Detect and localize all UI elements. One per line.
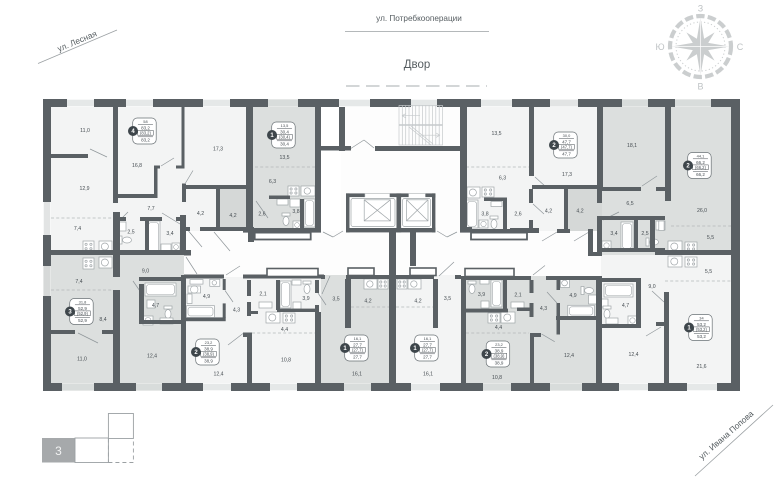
svg-text:3,5: 3,5 bbox=[444, 296, 451, 302]
svg-text:38,9: 38,9 bbox=[204, 358, 213, 363]
svg-text:6,5: 6,5 bbox=[626, 201, 633, 207]
svg-text:Двор: Двор bbox=[404, 59, 431, 71]
svg-text:4,4: 4,4 bbox=[281, 327, 288, 333]
svg-text:4,9: 4,9 bbox=[569, 293, 576, 299]
svg-text:(27,7): (27,7) bbox=[352, 347, 364, 352]
svg-text:7,7: 7,7 bbox=[147, 206, 154, 212]
svg-text:ул. Потребкооперации: ул. Потребкооперации bbox=[376, 14, 462, 23]
svg-text:4,3: 4,3 bbox=[233, 308, 240, 314]
svg-text:2,5: 2,5 bbox=[641, 231, 648, 237]
svg-text:4,7: 4,7 bbox=[622, 303, 629, 309]
svg-text:9,0: 9,0 bbox=[648, 284, 655, 290]
svg-text:38,9: 38,9 bbox=[495, 360, 504, 365]
svg-text:13,5: 13,5 bbox=[491, 131, 501, 137]
svg-text:12,4: 12,4 bbox=[147, 354, 157, 360]
svg-text:11,0: 11,0 bbox=[80, 128, 90, 134]
svg-text:3,5: 3,5 bbox=[332, 297, 339, 303]
svg-text:4,2: 4,2 bbox=[364, 299, 371, 305]
svg-text:30,4: 30,4 bbox=[280, 141, 289, 146]
svg-text:(30,4): (30,4) bbox=[279, 134, 291, 139]
svg-text:(27,7): (27,7) bbox=[422, 347, 434, 352]
svg-text:30,0: 30,0 bbox=[563, 133, 571, 138]
svg-text:16,8: 16,8 bbox=[132, 163, 142, 169]
svg-text:С: С bbox=[737, 42, 744, 52]
svg-text:(47,7): (47,7) bbox=[561, 144, 573, 149]
svg-text:3: 3 bbox=[55, 444, 62, 458]
svg-text:13,5: 13,5 bbox=[279, 155, 289, 161]
svg-text:44,1: 44,1 bbox=[697, 153, 705, 158]
svg-text:4,2: 4,2 bbox=[545, 209, 552, 215]
svg-text:66,2: 66,2 bbox=[696, 172, 705, 177]
svg-text:7,4: 7,4 bbox=[74, 226, 81, 232]
svg-text:4,7: 4,7 bbox=[152, 303, 159, 309]
svg-text:6,3: 6,3 bbox=[269, 179, 276, 185]
svg-text:2,6: 2,6 bbox=[258, 212, 265, 218]
svg-text:(38,9): (38,9) bbox=[493, 353, 505, 358]
svg-text:В: В bbox=[697, 82, 703, 92]
svg-text:3,8: 3,8 bbox=[292, 209, 299, 215]
svg-text:17,3: 17,3 bbox=[562, 172, 572, 178]
svg-text:3,4: 3,4 bbox=[610, 231, 617, 237]
svg-text:12,4: 12,4 bbox=[628, 352, 638, 358]
svg-text:4,4: 4,4 bbox=[495, 325, 502, 331]
svg-text:3,9: 3,9 bbox=[478, 292, 485, 298]
svg-text:3,9: 3,9 bbox=[302, 296, 309, 302]
svg-text:52,9: 52,9 bbox=[78, 318, 87, 323]
svg-text:4,3: 4,3 bbox=[540, 306, 547, 312]
svg-text:2,5: 2,5 bbox=[127, 230, 134, 236]
svg-text:6,3: 6,3 bbox=[499, 176, 506, 182]
svg-text:7,4: 7,4 bbox=[75, 279, 82, 285]
svg-text:10,8: 10,8 bbox=[492, 375, 502, 381]
svg-text:8,4: 8,4 bbox=[99, 317, 106, 323]
svg-text:27,7: 27,7 bbox=[353, 354, 362, 359]
svg-text:16,1: 16,1 bbox=[424, 336, 432, 341]
svg-text:12,4: 12,4 bbox=[564, 353, 574, 359]
svg-text:(83,2): (83,2) bbox=[140, 130, 152, 135]
svg-text:21,6: 21,6 bbox=[696, 364, 706, 370]
svg-text:16,1: 16,1 bbox=[354, 336, 362, 341]
svg-text:(53,2): (53,2) bbox=[696, 327, 708, 332]
svg-text:Ю: Ю bbox=[655, 42, 664, 52]
svg-text:5,5: 5,5 bbox=[705, 269, 712, 275]
svg-text:3,4: 3,4 bbox=[166, 231, 173, 237]
svg-text:2,6: 2,6 bbox=[514, 212, 521, 218]
svg-text:(66,2): (66,2) bbox=[695, 165, 707, 170]
svg-text:26,0: 26,0 bbox=[697, 208, 707, 214]
svg-text:18,1: 18,1 bbox=[627, 143, 637, 149]
svg-text:13,5: 13,5 bbox=[281, 123, 289, 128]
svg-text:4,2: 4,2 bbox=[197, 211, 204, 217]
svg-text:12,4: 12,4 bbox=[213, 372, 223, 378]
svg-text:5,5: 5,5 bbox=[707, 235, 714, 241]
svg-text:2,1: 2,1 bbox=[259, 292, 266, 298]
svg-text:4,9: 4,9 bbox=[203, 294, 210, 300]
svg-text:17,3: 17,3 bbox=[213, 147, 223, 153]
svg-text:31,8: 31,8 bbox=[79, 299, 87, 304]
svg-text:(38,9): (38,9) bbox=[203, 351, 215, 356]
svg-text:(52,9): (52,9) bbox=[77, 311, 89, 316]
svg-text:27,7: 27,7 bbox=[423, 354, 432, 359]
svg-text:16,1: 16,1 bbox=[423, 372, 433, 378]
svg-text:47,7: 47,7 bbox=[562, 151, 571, 156]
svg-text:23,2: 23,2 bbox=[495, 342, 503, 347]
svg-text:83,2: 83,2 bbox=[141, 137, 150, 142]
svg-text:9,0: 9,0 bbox=[142, 269, 149, 275]
svg-text:16,1: 16,1 bbox=[352, 372, 362, 378]
svg-text:11,0: 11,0 bbox=[77, 357, 87, 363]
svg-text:2,1: 2,1 bbox=[514, 293, 521, 299]
svg-text:10,8: 10,8 bbox=[281, 358, 291, 364]
svg-text:4,2: 4,2 bbox=[414, 299, 421, 305]
svg-text:53,2: 53,2 bbox=[697, 334, 706, 339]
svg-text:4,2: 4,2 bbox=[229, 213, 236, 219]
svg-text:3,8: 3,8 bbox=[481, 212, 488, 218]
svg-text:З: З bbox=[698, 4, 703, 14]
svg-text:4,2: 4,2 bbox=[576, 209, 583, 215]
svg-text:58: 58 bbox=[143, 119, 147, 124]
svg-text:23,2: 23,2 bbox=[205, 340, 213, 345]
svg-text:12,9: 12,9 bbox=[79, 186, 89, 192]
